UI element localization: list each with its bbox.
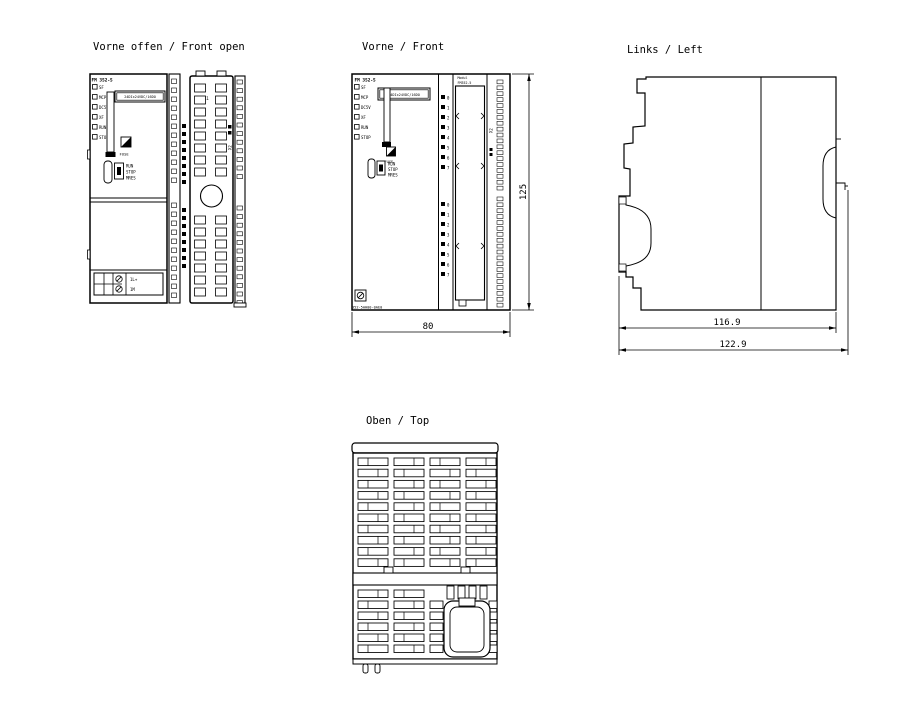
mount-tab: [88, 150, 91, 159]
module-name-label: FM 352-5: [92, 78, 114, 84]
terminal-point: [237, 157, 243, 161]
connector-hole: [195, 144, 206, 152]
vent-louvre: [430, 612, 443, 620]
vent-louvre: [430, 525, 460, 533]
terminal-point: [497, 303, 503, 307]
vent-louvre: [430, 503, 460, 511]
channel-mark: [182, 148, 186, 152]
module-body-front: [352, 74, 510, 310]
module-foot: [234, 303, 246, 307]
terminal-point: [497, 127, 503, 131]
channel-mark: [441, 232, 445, 236]
connector-hole: [195, 240, 206, 248]
vent-louvre: [430, 634, 443, 642]
vent-louvre: [430, 469, 460, 477]
terminal-point: [497, 203, 503, 207]
terminal-point: [237, 258, 243, 262]
channel-mark: [441, 95, 445, 99]
terminal-point: [497, 104, 503, 108]
connector-hole: [216, 264, 227, 272]
vent-louvre: [466, 548, 496, 556]
top-front-edge: [352, 443, 498, 453]
channel-mark: [441, 252, 445, 256]
connector-hole: [195, 276, 206, 284]
switch-label: MRES: [126, 176, 136, 181]
dim-arrow: [352, 330, 359, 334]
terminal-point: [497, 92, 503, 96]
top-rear-edge: [353, 659, 497, 664]
terminal-point: [497, 250, 503, 254]
terminal-point: [497, 256, 503, 260]
vent-slot: [447, 586, 454, 599]
dimensional-drawing-svg: Vorne offen / Front openVorne / FrontLin…: [0, 0, 920, 720]
connector-hole: [195, 216, 206, 224]
terminal-point: [237, 175, 243, 179]
connector-hole: [216, 288, 227, 296]
connector-hole: [195, 252, 206, 260]
vent-louvre: [430, 536, 460, 544]
connector-x2-label: X2: [489, 128, 494, 133]
led-label: RUN: [99, 125, 107, 130]
terminal-point: [172, 79, 177, 84]
vent-louvre: [430, 548, 460, 556]
top-divider-band: [353, 573, 497, 585]
vent-louvre: [430, 645, 443, 653]
terminal-point: [497, 157, 503, 161]
rail-detail: [619, 197, 626, 204]
connector-hole: [216, 252, 227, 260]
terminal-point: [172, 257, 177, 262]
switch-label: RUN: [388, 162, 396, 167]
terminal-point: [172, 239, 177, 244]
led-indicator: [93, 115, 98, 120]
terminal-point: [237, 106, 243, 110]
led-label: STOP: [361, 135, 371, 140]
vent-louvre: [466, 514, 496, 522]
terminal-point: [237, 89, 243, 93]
connector-hole: [195, 120, 206, 128]
vent-louvre: [430, 514, 460, 522]
terminal-point: [172, 212, 177, 217]
terminal-point: [172, 248, 177, 253]
connector-hole: [216, 240, 227, 248]
connector-hole: [195, 288, 206, 296]
vent-louvre: [358, 559, 388, 567]
connector-cutout-inner: [450, 607, 484, 652]
led-indicator: [355, 135, 360, 140]
terminal-point: [497, 139, 503, 143]
vent-louvre: [394, 601, 424, 609]
connector-hole: [216, 168, 227, 176]
door-label-line2: FM352-5: [458, 81, 472, 85]
terminal-point: [497, 280, 503, 284]
terminal-point: [497, 268, 503, 272]
channel-mark: [182, 180, 186, 184]
vent-louvre: [466, 559, 496, 567]
terminal-point: [237, 223, 243, 227]
terminal-point: [497, 286, 503, 290]
vent-louvre: [358, 548, 388, 556]
terminal-point: [237, 275, 243, 279]
band-tab: [384, 567, 393, 573]
dim-arrow: [527, 303, 531, 310]
led-label: RUN: [361, 125, 369, 130]
front-door: [456, 86, 485, 300]
channel-mark: [182, 140, 186, 144]
terminal-point: [172, 124, 177, 129]
connector-hole: [195, 264, 206, 272]
connector-hole: [216, 132, 227, 140]
view-header-front: Vorne / Front: [362, 41, 444, 53]
connector-hole: [216, 228, 227, 236]
terminal-point: [497, 238, 503, 242]
vent-louvre: [358, 634, 388, 642]
vent-louvre: [394, 645, 424, 653]
terminal-point: [497, 151, 503, 155]
cable-opening: [201, 185, 223, 207]
channel-mark: [182, 264, 186, 268]
vent-louvre: [358, 612, 388, 620]
connector-hole: [216, 216, 227, 224]
connector-hole: [195, 84, 206, 92]
terminal-point: [497, 262, 503, 266]
terminal-point: [172, 160, 177, 165]
vent-louvre: [358, 514, 388, 522]
terminal-point: [497, 227, 503, 231]
vent-louvre: [394, 590, 424, 598]
terminal-point: [237, 114, 243, 118]
vent-louvre: [394, 536, 424, 544]
channel-mark: [182, 232, 186, 236]
vent-louvre: [430, 480, 460, 488]
led-label: XF: [361, 115, 366, 120]
vent-louvre: [466, 525, 496, 533]
channel-mark: [182, 216, 186, 220]
connector-hole: [216, 276, 227, 284]
dim-arrow: [619, 326, 626, 330]
terminal-point: [497, 209, 503, 213]
mount-pin: [363, 664, 368, 673]
vent-louvre: [466, 480, 496, 488]
terminal-point: [497, 80, 503, 84]
dimension-width-label: 80: [423, 322, 434, 332]
connector-hole: [195, 156, 206, 164]
power-terminal-label: 1L+: [130, 277, 138, 282]
channel-mark: [441, 125, 445, 129]
terminal-point: [172, 142, 177, 147]
channel-mark: [441, 155, 445, 159]
terminal-point: [172, 97, 177, 102]
vent-louvre: [358, 601, 388, 609]
vent-louvre: [358, 458, 388, 466]
connector-hole: [195, 228, 206, 236]
channel-mark: [441, 212, 445, 216]
terminal-point: [497, 291, 503, 295]
dimension-height-label: 125: [519, 184, 529, 200]
terminal-point: [237, 149, 243, 153]
led-indicator: [93, 135, 98, 140]
led-label: SF: [361, 85, 366, 90]
terminal-point: [237, 206, 243, 210]
channel-mark: [182, 124, 186, 128]
terminal-point: [172, 88, 177, 93]
vent-louvre: [358, 536, 388, 544]
vent-louvre: [430, 601, 443, 609]
type-plate-label: 24DIx24VDC/16DO: [124, 95, 156, 99]
vent-louvre: [394, 492, 424, 500]
led-indicator: [355, 95, 360, 100]
led-indicator: [93, 85, 98, 90]
terminal-point: [237, 215, 243, 219]
connector-hole: [195, 168, 206, 176]
terminal-point: [497, 297, 503, 301]
memory-card-slot: [384, 88, 390, 142]
module-name-label: FM 352-5: [355, 78, 377, 84]
dimension-depth-inner-label: 116.9: [713, 318, 740, 328]
vent-louvre: [394, 548, 424, 556]
dim-arrow: [829, 326, 836, 330]
terminal-point: [172, 203, 177, 208]
power-terminal-label: 1M: [130, 287, 135, 292]
channel-mark: [490, 148, 493, 151]
connector-hole: [195, 96, 206, 104]
channel-mark: [182, 172, 186, 176]
vent-louvre: [358, 590, 388, 598]
connector-hole: [216, 156, 227, 164]
vent-louvre: [358, 645, 388, 653]
vent-louvre: [466, 458, 496, 466]
terminal-point: [497, 174, 503, 178]
view-front-open: FM 352-5SFMCPDC5VXFRUNSTOP24DIx24VDC/16D…: [88, 71, 247, 307]
connector-tab: [196, 71, 205, 76]
channel-mark: [182, 156, 186, 160]
terminal-point: [172, 115, 177, 120]
mode-switch-slot: [368, 159, 375, 178]
terminal-point: [237, 249, 243, 253]
vent-louvre: [394, 623, 424, 631]
door-foot: [459, 300, 466, 306]
led-indicator: [355, 85, 360, 90]
led-indicator: [355, 105, 360, 110]
side-profile-outline: [619, 77, 836, 310]
vent-louvre: [358, 469, 388, 477]
dim-arrow: [619, 348, 626, 352]
led-indicator: [355, 125, 360, 130]
terminal-point: [497, 115, 503, 119]
door-label-line1: Modul: [458, 76, 468, 80]
led-label: MCP: [99, 95, 107, 100]
view-header-left: Links / Left: [627, 44, 703, 56]
switch-label: STOP: [388, 167, 398, 172]
terminal-point: [237, 80, 243, 84]
terminal-point: [497, 98, 503, 102]
channel-mark: [228, 125, 232, 129]
vent-slot: [458, 586, 465, 599]
rail-detail: [619, 264, 626, 271]
view-header-front-open: Vorne offen / Front open: [93, 41, 245, 53]
mode-switch-slot: [104, 161, 112, 183]
channel-mark: [441, 272, 445, 276]
connector-tab: [217, 71, 226, 76]
vent-louvre: [394, 480, 424, 488]
channel-mark: [441, 135, 445, 139]
channel-mark: [182, 164, 186, 168]
terminal-point: [497, 215, 503, 219]
channel-mark: [182, 248, 186, 252]
dim-arrow: [503, 330, 510, 334]
led-indicator: [93, 95, 98, 100]
channel-mark: [441, 115, 445, 119]
vent-louvre: [466, 469, 496, 477]
dimension-height: 125: [512, 74, 534, 310]
order-number-label: 352-5AH00-0AE0: [352, 306, 382, 310]
switch-label: RUN: [126, 164, 134, 169]
terminal-point: [237, 97, 243, 101]
connector-hole: [195, 108, 206, 116]
memory-card-slot: [107, 92, 114, 152]
channel-mark: [441, 165, 445, 169]
view-top: [352, 443, 498, 673]
terminal-point: [172, 284, 177, 289]
connector-hole: [216, 84, 227, 92]
vent-louvre: [466, 503, 496, 511]
channel-mark: [441, 105, 445, 109]
vent-slot: [480, 586, 487, 599]
channel-mark: [182, 256, 186, 260]
led-indicator: [93, 125, 98, 130]
terminal-point: [172, 275, 177, 280]
terminal-point: [497, 180, 503, 184]
channel-mark: [182, 240, 186, 244]
dimension-depth-total: 122.9: [619, 190, 848, 355]
channel-mark: [441, 145, 445, 149]
channel-mark: [182, 224, 186, 228]
dim-arrow: [527, 74, 531, 81]
switch-label: STOP: [126, 170, 136, 175]
channel-mark: [228, 131, 232, 135]
terminal-point: [497, 133, 503, 137]
connector-hole: [216, 144, 227, 152]
channel-mark: [182, 132, 186, 136]
channel-mark: [441, 242, 445, 246]
vent-louvre: [394, 503, 424, 511]
view-left: [619, 77, 848, 310]
terminal-point: [237, 283, 243, 287]
vent-louvre: [394, 458, 424, 466]
channel-mark: [441, 222, 445, 226]
terminal-point: [497, 232, 503, 236]
led-indicator: [355, 115, 360, 120]
channel-mark: [490, 153, 493, 156]
vent-louvre: [430, 492, 460, 500]
terminal-point: [172, 151, 177, 156]
vent-louvre: [394, 634, 424, 642]
terminal-point: [172, 169, 177, 174]
type-plate-label: 24DIx24VDC/16DO: [388, 93, 420, 97]
terminal-point: [172, 266, 177, 271]
terminal-point: [497, 121, 503, 125]
terminal-point: [497, 169, 503, 173]
mode-switch-grip: [117, 167, 121, 175]
terminal-point: [497, 163, 503, 167]
connector-x2-label: X2: [228, 145, 233, 150]
dim-arrow: [841, 348, 848, 352]
vent-louvre: [394, 514, 424, 522]
terminal-point: [172, 230, 177, 235]
vent-louvre: [358, 492, 388, 500]
drawing-canvas: Vorne offen / Front openVorne / FrontLin…: [0, 0, 920, 720]
terminal-point: [497, 86, 503, 90]
vent-louvre: [358, 525, 388, 533]
vent-louvre: [394, 525, 424, 533]
terminal-point: [237, 266, 243, 270]
vent-louvre: [430, 458, 460, 466]
channel-mark: [441, 202, 445, 206]
terminal-point: [237, 240, 243, 244]
vent-louvre: [394, 612, 424, 620]
led-label: MCP: [361, 95, 369, 100]
connector-hole: [216, 120, 227, 128]
mount-pin: [375, 664, 380, 673]
connector-hole: [195, 132, 206, 140]
terminal-point: [172, 293, 177, 298]
terminal-point: [497, 186, 503, 190]
vent-louvre: [394, 469, 424, 477]
cutout-tab: [459, 598, 475, 606]
memory-card-tab: [382, 142, 391, 147]
terminal-point: [172, 178, 177, 183]
connector-hole: [216, 96, 227, 104]
vent-louvre: [430, 623, 443, 631]
vent-louvre: [358, 623, 388, 631]
memory-card-tab: [106, 152, 116, 157]
vent-louvre: [466, 492, 496, 500]
terminal-point: [172, 133, 177, 138]
view-header-top: Oben / Top: [366, 415, 429, 427]
connector-hole: [216, 108, 227, 116]
led-label: SF: [99, 85, 104, 90]
terminal-point: [237, 292, 243, 296]
terminal-point: [497, 221, 503, 225]
view-front: FM 352-5SFMCPDC5VXFRUNSTOP24DIx24VDC/16D…: [352, 74, 510, 310]
vent-louvre: [394, 559, 424, 567]
terminal-point: [497, 110, 503, 114]
switch-label: MRES: [388, 173, 398, 178]
mode-switch-grip: [379, 165, 383, 172]
terminal-point: [497, 244, 503, 248]
dimension-width: 80: [352, 312, 510, 337]
vent-slot: [469, 586, 476, 599]
channel-mark: [441, 262, 445, 266]
fuse-label: FUSE: [120, 152, 130, 157]
led-label: XF: [99, 115, 104, 120]
mount-tab: [88, 250, 91, 259]
vent-louvre: [358, 503, 388, 511]
terminal-point: [172, 106, 177, 111]
vent-louvre: [466, 536, 496, 544]
terminal-point: [237, 232, 243, 236]
door-latch-profile: [823, 147, 836, 218]
terminal-point: [497, 197, 503, 201]
led-label: DC5V: [361, 105, 371, 110]
terminal-point: [497, 145, 503, 149]
terminal-point: [497, 274, 503, 278]
front-hook: [836, 183, 845, 190]
led-indicator: [93, 105, 98, 110]
dimension-depth-total-label: 122.9: [719, 340, 746, 350]
terminal-point: [237, 166, 243, 170]
band-tab: [461, 567, 470, 573]
